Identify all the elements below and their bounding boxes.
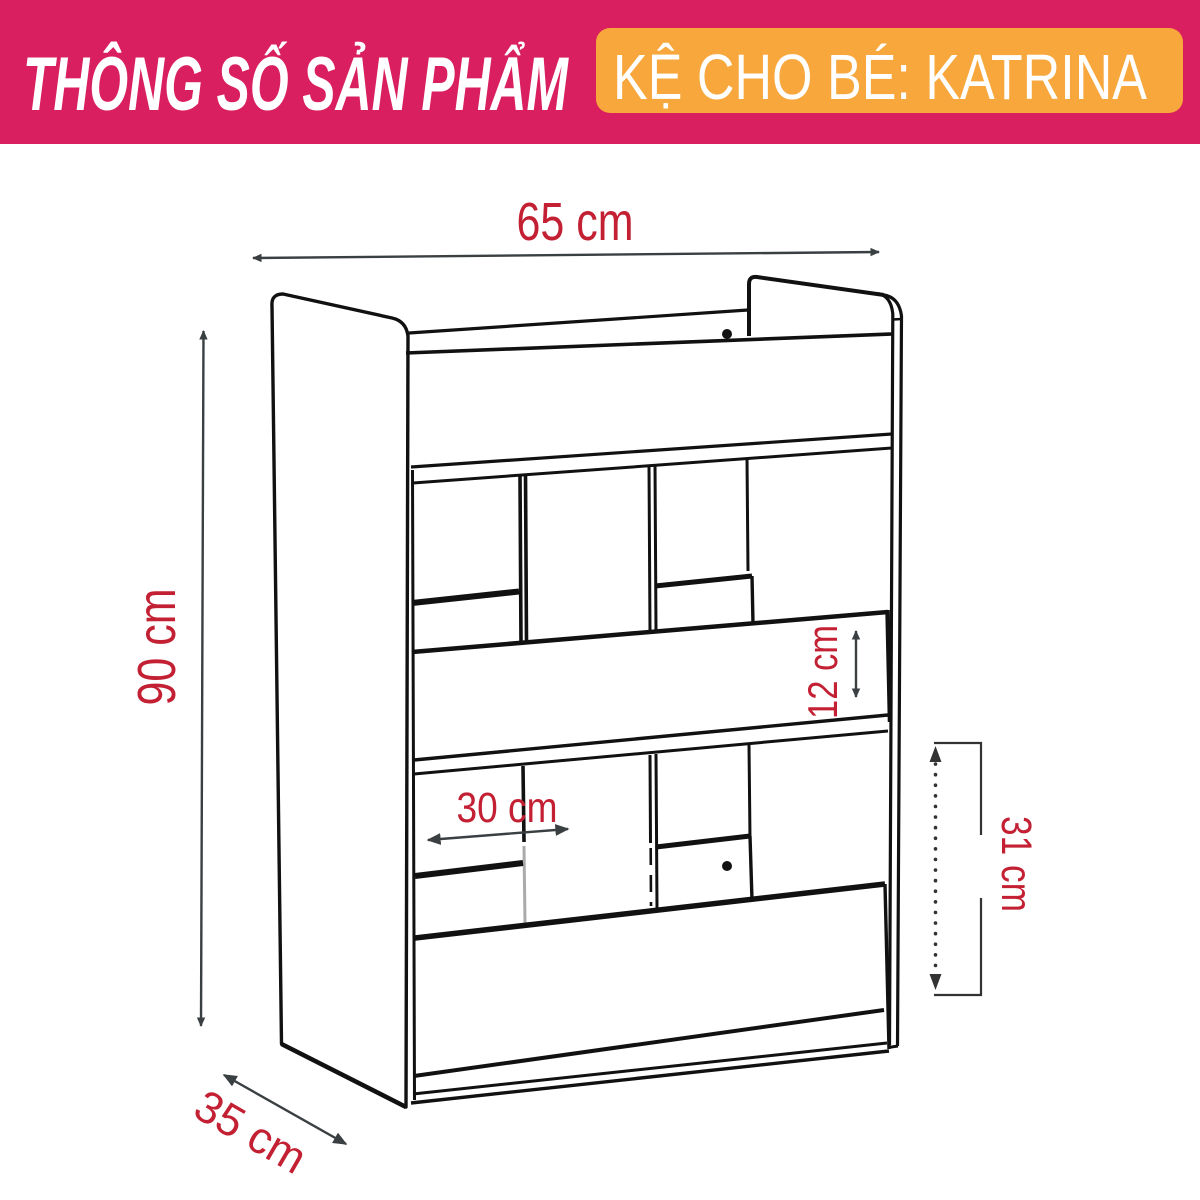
svg-text:12 cm: 12 cm (799, 625, 846, 719)
svg-text:THÔNG SỐ SẢN PHẨM: THÔNG SỐ SẢN PHẨM (23, 41, 569, 127)
svg-text:KỆ CHO BÉ: KATRINA: KỆ CHO BÉ: KATRINA (613, 41, 1147, 113)
svg-text:65 cm: 65 cm (517, 192, 634, 252)
svg-text:90 cm: 90 cm (127, 589, 187, 706)
svg-text:35 cm: 35 cm (186, 1080, 315, 1184)
svg-text:30 cm: 30 cm (457, 784, 558, 832)
svg-text:31 cm: 31 cm (992, 816, 1040, 912)
